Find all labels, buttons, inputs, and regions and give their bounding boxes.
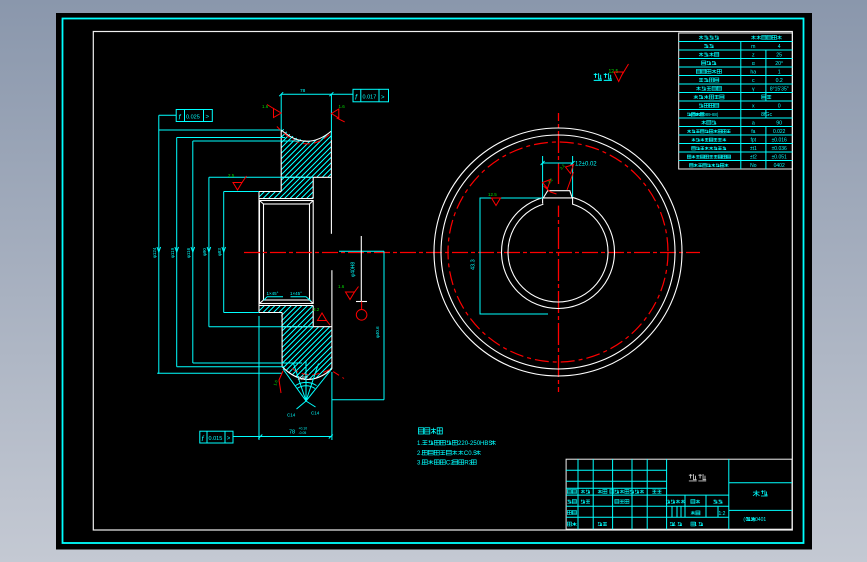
svg-text:0: 0 xyxy=(778,104,781,110)
svg-text:1: 1 xyxy=(673,522,676,528)
svg-text:C0.5: C0.5 xyxy=(464,451,477,457)
svg-text:1:2: 1:2 xyxy=(719,511,726,517)
svg-text:γ: γ xyxy=(752,87,755,93)
svg-text:20°: 20° xyxy=(775,61,783,67)
svg-text:φ90: φ90 xyxy=(202,248,207,256)
svg-text:78: 78 xyxy=(289,430,295,436)
svg-text:z: z xyxy=(752,53,755,59)
svg-text:0402: 0402 xyxy=(774,163,785,169)
svg-text:±t2: ±t2 xyxy=(750,155,757,161)
svg-text:±t1: ±t1 xyxy=(750,146,757,152)
svg-text:8°15'35": 8°15'35" xyxy=(770,87,789,93)
svg-text:78: 78 xyxy=(300,88,306,94)
svg-text:±0.036: ±0.036 xyxy=(772,146,787,152)
svg-text:25: 25 xyxy=(776,53,782,59)
svg-text:1: 1 xyxy=(694,522,697,528)
svg-text:m: m xyxy=(751,44,755,50)
svg-text:1.6: 1.6 xyxy=(339,104,346,109)
svg-text:>: > xyxy=(206,115,210,121)
svg-text:R3: R3 xyxy=(464,461,472,467)
svg-text:2.: 2. xyxy=(417,451,422,457)
svg-text:1.6: 1.6 xyxy=(262,104,269,109)
svg-text:1×45°: 1×45° xyxy=(267,291,279,296)
svg-text:>: > xyxy=(227,436,231,442)
svg-text:-0.05: -0.05 xyxy=(299,431,307,435)
svg-text:108°: 108° xyxy=(298,376,308,382)
svg-text:±0.016: ±0.016 xyxy=(772,138,787,144)
svg-text:0.2: 0.2 xyxy=(776,78,783,84)
svg-text:1.: 1. xyxy=(417,441,422,447)
svg-text:0.025: 0.025 xyxy=(186,114,200,120)
svg-text:0.017: 0.017 xyxy=(363,95,377,101)
svg-text:220-250HBS: 220-250HBS xyxy=(458,441,492,447)
svg-text:C2: C2 xyxy=(446,461,454,467)
svg-text:φ83: φ83 xyxy=(217,248,222,256)
svg-text:C14: C14 xyxy=(311,411,320,416)
svg-text:3.: 3. xyxy=(417,461,422,467)
svg-text:12±0.02: 12±0.02 xyxy=(575,162,597,168)
svg-text:12.5: 12.5 xyxy=(488,192,497,197)
svg-text:8fGc: 8fGc xyxy=(761,112,772,118)
svg-text:φ40.6: φ40.6 xyxy=(375,326,380,338)
svg-text:0.015: 0.015 xyxy=(209,436,223,442)
svg-text:φ119: φ119 xyxy=(170,247,175,258)
svg-text:1.6: 1.6 xyxy=(338,284,345,289)
svg-text:90: 90 xyxy=(776,121,782,127)
svg-text:>: > xyxy=(381,95,385,101)
svg-text:C14: C14 xyxy=(287,413,296,418)
svg-text:a: a xyxy=(752,121,755,127)
svg-text:011)0401: 011)0401 xyxy=(745,517,766,523)
svg-text:±0.051: ±0.051 xyxy=(772,155,787,161)
svg-text:fa: fa xyxy=(751,129,755,135)
svg-text:4: 4 xyxy=(778,44,781,50)
svg-text:0.022: 0.022 xyxy=(773,129,786,135)
svg-text:fpt: fpt xyxy=(751,138,757,144)
svg-text:φ124: φ124 xyxy=(152,247,157,258)
svg-text:c: c xyxy=(752,78,755,84)
svg-text:43.3: 43.3 xyxy=(471,259,477,270)
svg-text:3.2: 3.2 xyxy=(313,307,320,312)
svg-text:No: No xyxy=(750,163,757,169)
svg-text:α: α xyxy=(752,61,755,67)
svg-text:ha: ha xyxy=(750,70,756,76)
svg-text:x: x xyxy=(752,104,755,110)
svg-text:φ116: φ116 xyxy=(186,247,191,258)
svg-text:1×45°: 1×45° xyxy=(290,291,302,296)
svg-text:2.5: 2.5 xyxy=(228,173,235,178)
svg-text:φ40H8: φ40H8 xyxy=(351,262,357,277)
svg-text:1: 1 xyxy=(778,70,781,76)
svg-text:(GB10089-88): (GB10089-88) xyxy=(691,112,719,117)
